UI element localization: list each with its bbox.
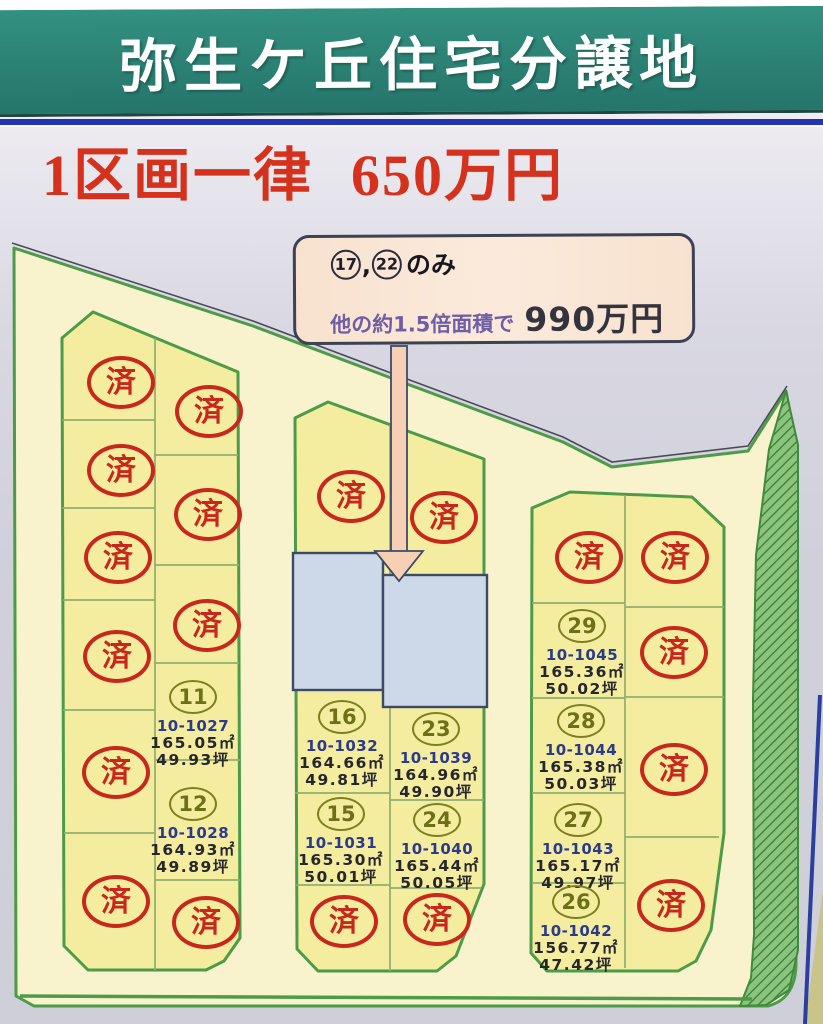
- sold-stamp: 済: [173, 599, 241, 652]
- lot-11-info: 11 10-1027 165.05㎡ 49.93坪: [128, 680, 258, 769]
- lot-area-m2: 165.05㎡: [128, 735, 258, 752]
- lot-number-badge: 16: [318, 700, 366, 734]
- callout-line2: 他の約1.5倍面積で990万円: [330, 292, 692, 342]
- callout-line1: 17,22のみ: [330, 244, 692, 284]
- lot-number-badge: 28: [557, 704, 605, 738]
- lot-28-info: 28 10-1044 165.38㎡ 50.03坪: [516, 704, 646, 793]
- sold-stamp: 済: [317, 470, 385, 523]
- lot-number-badge: 15: [317, 797, 365, 831]
- lot-code: 10-1027: [128, 718, 258, 735]
- sold-stamp: 済: [172, 896, 240, 949]
- sold-stamp: 済: [84, 531, 152, 584]
- sold-stamp: 済: [82, 875, 150, 928]
- lot-code: 10-1043: [513, 841, 643, 858]
- sold-stamp: 済: [87, 356, 155, 409]
- lot-code: 10-1044: [516, 742, 646, 759]
- sold-stamp: 済: [555, 531, 623, 584]
- lot-number-badge: 11: [169, 680, 217, 714]
- lot-area-tsubo: 49.89坪: [128, 859, 258, 876]
- lot-area-tsubo: 47.42坪: [511, 957, 641, 974]
- sold-stamp: 済: [87, 444, 155, 497]
- circled-number-22: 22: [372, 249, 402, 279]
- sold-stamp: 済: [410, 491, 478, 544]
- lot-area-m2: 164.96㎡: [371, 767, 501, 784]
- sold-stamp: 済: [640, 626, 708, 679]
- circled-number-17: 17: [331, 250, 361, 280]
- lot-27-info: 27 10-1043 165.17㎡ 49.97坪: [513, 803, 643, 892]
- lot-area-m2: 156.77㎡: [511, 940, 641, 957]
- lot-area-m2: 165.17㎡: [513, 858, 643, 875]
- lot-24-info: 24 10-1040 165.44㎡ 50.05坪: [372, 803, 502, 892]
- lot-12-info: 12 10-1028 164.93㎡ 49.89坪: [128, 787, 258, 876]
- lot-code: 10-1040: [372, 841, 502, 858]
- flyer-page: 弥生ケ丘住宅分譲地 1区画一律650万円: [0, 0, 823, 1024]
- sold-stamp: 済: [641, 531, 709, 584]
- lot-area-m2: 165.38㎡: [516, 759, 646, 776]
- sold-stamp: 済: [175, 385, 243, 438]
- lot-area-m2: 165.44㎡: [372, 858, 502, 875]
- lot-code: 10-1039: [371, 750, 501, 767]
- sold-stamp: 済: [310, 895, 378, 948]
- callout-price: 990万円: [524, 299, 664, 339]
- lot-area-m2: 164.93㎡: [128, 842, 258, 859]
- lot-area-tsubo: 50.03坪: [516, 776, 646, 793]
- sold-stamp: 済: [637, 879, 705, 932]
- lot-area-tsubo: 50.05坪: [372, 875, 502, 892]
- lot-code: 10-1028: [128, 825, 258, 842]
- lot-area-tsubo: 49.93坪: [128, 752, 258, 769]
- lot-29-info: 29 10-1045 165.36㎡ 50.02坪: [517, 609, 647, 698]
- lot-26-info: 26 10-1042 156.77㎡ 47.42坪: [511, 885, 641, 974]
- sold-stamp: 済: [403, 893, 471, 946]
- callout-only-text: のみ: [406, 250, 456, 279]
- sold-stamp: 済: [174, 488, 242, 541]
- lot-code: 10-1042: [511, 923, 641, 940]
- lot-area-tsubo: 50.02坪: [517, 681, 647, 698]
- lot-number-badge: 27: [554, 803, 602, 837]
- callout-box: 17,22のみ 他の約1.5倍面積で990万円: [293, 233, 696, 345]
- highlight-lot-22: [383, 575, 487, 707]
- lot-number-badge: 26: [552, 885, 600, 919]
- lot-number-badge: 12: [169, 787, 217, 821]
- lot-number-badge: 29: [558, 609, 606, 643]
- lot-number-badge: 24: [413, 803, 461, 837]
- lot-number-badge: 23: [412, 712, 460, 746]
- highlight-lot-17: [293, 553, 383, 690]
- lot-area-m2: 165.36㎡: [517, 664, 647, 681]
- callout-area-text: 他の約1.5倍面積で: [330, 312, 514, 337]
- lot-23-info: 23 10-1039 164.96㎡ 49.90坪: [371, 712, 501, 801]
- sold-stamp: 済: [83, 630, 151, 683]
- sold-stamp: 済: [640, 743, 708, 796]
- lot-code: 10-1045: [517, 647, 647, 664]
